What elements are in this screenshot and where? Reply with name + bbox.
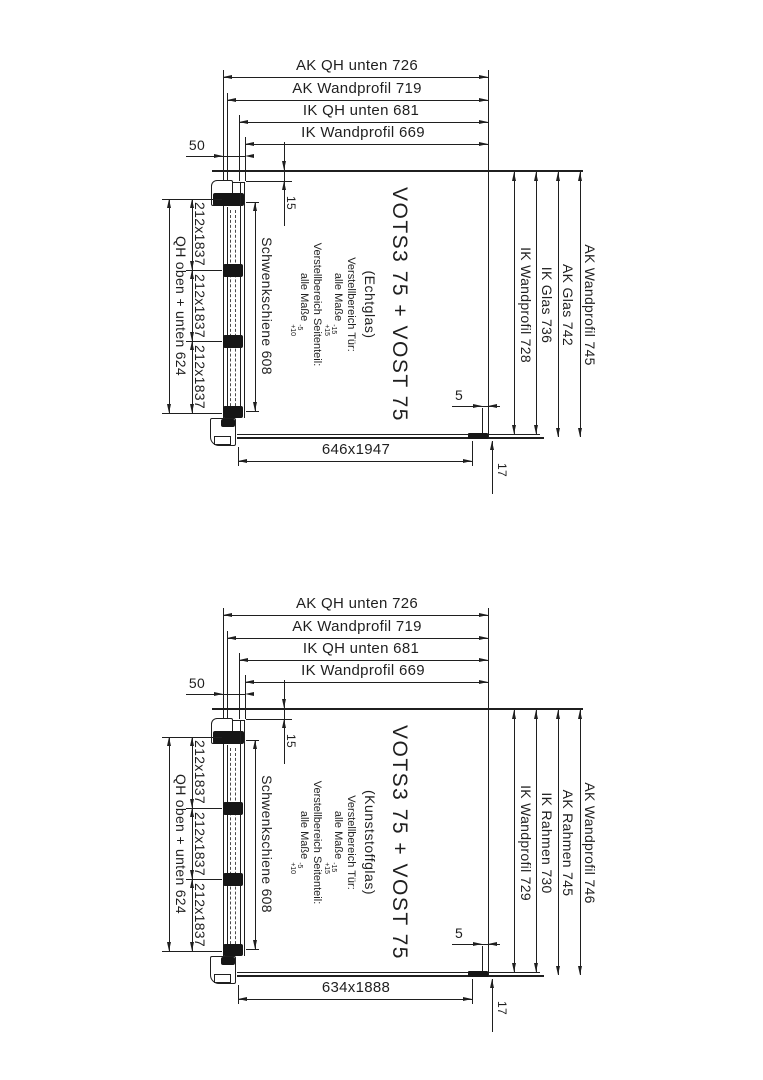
dim-line-right-1 [514,710,515,972]
dim-label-qh-oben-unten: QH oben + unten 624 [173,774,189,914]
panel-line [232,720,244,721]
adjustment-side-values: alle Maße-5+10 [289,182,310,427]
extension-line [246,949,259,950]
panel-line [240,720,241,745]
hinge-block [223,944,243,956]
glass-type: (Kunststoffglas) [362,720,378,965]
extension-line [246,740,259,741]
dim-label-segment: 212x1837 [192,883,208,947]
side-panel-outer-line [237,975,544,977]
corner-connector-block [468,971,488,977]
extension-line [186,808,222,809]
dim-label-size: 646x1947 [322,441,390,458]
dim-label-ak-wandprofil: AK Wandprofil 719 [292,80,422,97]
panel-line [244,182,245,207]
product-info-block: VOTS3 75 + VOST 75 (Kunststoffglas) Vers… [290,720,407,965]
door-panel-line [227,207,228,417]
wall-line [212,708,583,710]
adjustment-side-prefix: alle Maße [298,811,310,859]
tolerance-stack: -15+15 [323,862,336,874]
dim-label-right-4: AK Wandprofil 746 [582,782,598,903]
dim-line-ik-qh-unten [239,122,488,123]
tolerance-upper: -15 [330,324,337,336]
extension-line [162,951,222,952]
dim-line-right-3 [558,172,559,437]
page: { "diagrams": [ { "top_dims": ["AK QH un… [0,0,763,1080]
tolerance-lower: +10 [289,862,296,874]
door-panel-line [227,745,228,955]
tolerance-upper: -15 [330,862,337,874]
product-title: VOTS3 75 + VOST 75 [387,720,411,965]
dim-label-ik-qh-unten: IK QH unten 681 [303,102,419,119]
wall-reference-line [488,70,489,437]
dim-label-right-3: AK Rahmen 745 [560,790,576,897]
dim-line-5 [482,406,488,407]
diagram-2: AK QH unten 726 AK Wandprofil 719 IK QH … [0,538,763,1078]
door-panel-edge [223,206,225,418]
dim-line-right-3 [558,710,559,975]
dim-label-50: 50 [189,137,205,153]
hinge-block [223,406,243,418]
dim-label-segment: 212x1837 [192,812,208,876]
dim-line-right-1 [514,172,515,434]
door-panel-line [240,207,241,417]
dim-label-ak-qh-unten: AK QH unten 726 [296,57,418,74]
adjustment-door-label: Verstellbereich Tür: [345,720,357,965]
dim-line-schwenkschiene [255,740,256,949]
dim-line-ik-wandprofil [245,144,489,145]
dim-label-size: 634x1888 [322,979,390,996]
product-info-block: VOTS3 75 + VOST 75 (Echtglas) Verstellbe… [290,182,407,427]
dim-line-15 [284,170,285,181]
panel-line [244,720,245,745]
extension-line [186,879,222,880]
door-panel-dashed-line [235,748,236,954]
dim-line-right-2 [536,172,537,434]
dim-label-right-3: AK Glas 742 [560,264,576,346]
hinge-block [223,335,243,348]
extension-line [238,985,239,1004]
dim-line-ak-wandprofil [227,100,489,101]
dim-label-5: 5 [455,387,463,403]
wall-line [212,170,583,172]
panel-line [232,182,244,183]
dim-line-right-4 [580,710,581,975]
dim-label-ak-wandprofil: AK Wandprofil 719 [292,618,422,635]
dim-line-qh-oben-unten [169,737,170,951]
dim-line-50 [223,156,245,157]
dim-label-17: 17 [495,1001,509,1015]
dim-line-ak-qh-unten [223,77,488,78]
dim-line-size [238,461,472,462]
extension-line [482,408,483,433]
extension-line [227,631,228,719]
tolerance-stack: -15+15 [323,324,336,336]
dim-line-50 [223,694,245,695]
hinge-block [223,873,243,886]
dim-line-ik-qh-unten [239,660,488,661]
dim-line-right-4 [580,172,581,437]
adjustment-side-values: alle Maße-5+10 [289,720,310,965]
profile-connector-block [221,419,235,427]
dim-line-17 [492,979,493,1032]
adjustment-door-prefix: alle Maße [332,811,344,859]
dim-line-right-2 [536,710,537,972]
door-panel-dashed-line [235,210,236,416]
dim-label-segment: 212x1837 [192,274,208,338]
hinge-block [223,802,243,815]
dim-label-right-4: AK Wandprofil 745 [582,244,598,365]
dim-label-right-1: IK Wandprofil 729 [518,785,534,901]
dim-label-right-2: IK Glas 736 [539,267,555,343]
side-panel-outer-line [237,437,544,439]
dim-line-qh-oben-unten [169,199,170,413]
wall-reference-line [488,608,489,975]
dim-line-size [238,999,472,1000]
extension-line [245,675,246,719]
dim-label-right-1: IK Wandprofil 728 [518,247,534,363]
dim-line-schwenkschiene [255,202,256,411]
dim-label-ik-wandprofil: IK Wandprofil 669 [301,124,425,141]
dim-line-15 [284,708,285,719]
dim-label-50: 50 [189,675,205,691]
extension-line [227,93,228,181]
tolerance-stack: -5+10 [289,862,302,874]
door-panel-edge [244,744,246,956]
dim-line-ak-qh-unten [223,615,488,616]
extension-line [246,719,292,720]
extension-line [472,441,473,466]
tolerance-upper: -5 [296,862,303,874]
door-panel-edge [223,744,225,956]
dim-line-ak-wandprofil [227,638,489,639]
door-panel-edge [244,206,246,418]
adjustment-door-values: alle Maße-15+15 [323,720,344,965]
dim-label-5: 5 [455,925,463,941]
side-panel-inner-line [237,434,540,435]
dim-label-ik-qh-unten: IK QH unten 681 [303,640,419,657]
dim-label-schwenkschiene: Schwenkschiene 608 [259,237,275,375]
extension-line [162,737,222,738]
tolerance-lower: +10 [289,324,296,336]
door-panel-line [240,745,241,955]
dim-label-ak-qh-unten: AK QH unten 726 [296,595,418,612]
dim-line-ik-wandprofil [245,682,489,683]
product-title: VOTS3 75 + VOST 75 [387,182,411,427]
dim-label-17: 17 [495,463,509,477]
extension-line [246,411,259,412]
dim-label-right-2: IK Rahmen 730 [539,792,555,893]
dim-line-17 [492,441,493,494]
extension-line [186,341,222,342]
dim-label-segment: 212x1837 [192,345,208,409]
adjustment-side-label: Verstellbereich Seitenteil: [311,720,323,965]
dim-label-segment: 212x1837 [192,740,208,804]
adjustment-door-label: Verstellbereich Tür: [345,182,357,427]
extension-line [162,413,222,414]
extension-line [162,199,222,200]
tolerance-stack: -5+10 [289,324,302,336]
dim-label-ik-wandprofil: IK Wandprofil 669 [301,662,425,679]
dim-label-schwenkschiene: Schwenkschiene 608 [259,775,275,913]
tolerance-upper: -5 [296,324,303,336]
tolerance-lower: +15 [323,862,330,874]
glass-type: (Echtglas) [362,182,378,427]
profile-notch [214,436,231,445]
door-panel-dashed-line [230,748,231,954]
extension-line [472,979,473,1004]
extension-line [186,270,222,271]
side-panel-inner-line [237,972,540,973]
dim-label-segment: 212x1837 [192,202,208,266]
profile-notch [214,974,231,983]
extension-line [223,608,224,719]
drawing-sheet: AK QH unten 726 AK Wandprofil 719 IK QH … [0,0,763,1080]
profile-connector-block [221,957,235,965]
extension-line [223,70,224,181]
dim-line-5 [482,944,488,945]
dim-label-qh-oben-unten: QH oben + unten 624 [173,236,189,376]
tolerance-lower: +15 [323,324,330,336]
extension-line [482,946,483,971]
adjustment-side-label: Verstellbereich Seitenteil: [311,182,323,427]
diagram-1: AK QH unten 726 AK Wandprofil 719 IK QH … [0,0,763,540]
extension-line [246,181,292,182]
corner-connector-block [468,433,488,439]
adjustment-door-values: alle Maße-15+15 [323,182,344,427]
door-panel-dashed-line [230,210,231,416]
panel-line [240,182,241,207]
adjustment-door-prefix: alle Maße [332,273,344,321]
hinge-block [223,264,243,277]
extension-line [245,137,246,181]
adjustment-side-prefix: alle Maße [298,273,310,321]
extension-line [246,202,259,203]
extension-line [238,447,239,466]
